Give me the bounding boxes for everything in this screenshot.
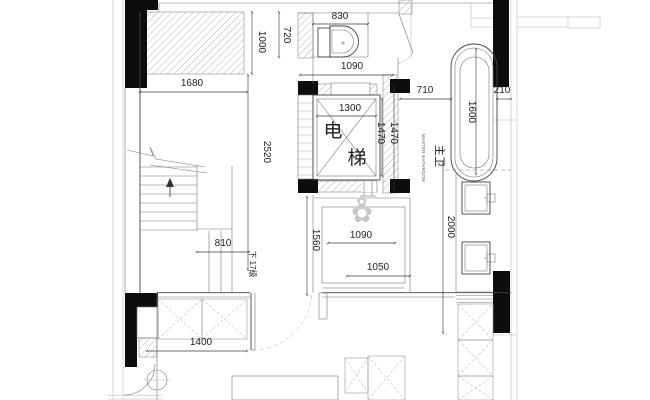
break-line [127, 147, 205, 167]
dim-210: 210 [494, 85, 511, 99]
room-labels: MASTER BATHROOM 主卫 [421, 134, 446, 182]
dim-1050: 1050 [347, 262, 410, 276]
master-bathroom-cn-label: 主卫 [433, 145, 446, 167]
floor-drain [144, 367, 170, 393]
stair-note-label: 下 17级 [248, 250, 258, 277]
dim-text-830: 830 [332, 11, 349, 22]
dim-text-2520: 2520 [261, 141, 272, 164]
dim-text-1680: 1680 [181, 78, 204, 89]
dim-text-810: 810 [215, 238, 232, 249]
dim-text-210: 210 [494, 85, 511, 96]
elevator-door [331, 83, 370, 95]
dim-1000: 1000 [252, 12, 267, 74]
dim-text-1000: 1000 [256, 31, 267, 54]
dim-1560: 1560 [307, 197, 321, 295]
dim-text-1470-outer: 1470 [388, 122, 399, 145]
floor-plan-drawing: 电 梯 下 17级 [0, 0, 650, 400]
door-bottom [251, 293, 312, 350]
dim-2000: 2000 [443, 163, 456, 333]
floor-plan: 电 梯 下 17级 [0, 0, 650, 400]
elevator-label-char1: 电 [323, 120, 342, 142]
dim-text-720: 720 [281, 27, 292, 44]
toilet [318, 26, 358, 57]
stairs: 下 17级 [127, 147, 258, 293]
dim-1680: 1680 [140, 78, 247, 92]
shower-room: ✿ ✿ [313, 194, 410, 319]
dim-810: 810 [197, 238, 249, 252]
door-swing-arc [253, 293, 312, 350]
furniture-rect [232, 376, 338, 400]
dim-text-710: 710 [417, 85, 434, 96]
hatched-closet [140, 12, 244, 74]
dim-text-1090-top: 1090 [341, 61, 364, 72]
elevator-label-char2: 梯 [347, 147, 366, 169]
dim-720: 720 [279, 12, 292, 57]
sink-2 [462, 242, 495, 274]
dim-text-1400: 1400 [190, 337, 213, 348]
dim-text-1300: 1300 [339, 103, 362, 114]
ceiling-flower-decor-small: ✿ [357, 194, 368, 209]
dim-1600: 1600 [466, 49, 477, 174]
dim-text-1560: 1560 [310, 229, 321, 252]
dim-text-1470-inner: 1470 [375, 122, 386, 145]
dim-text-2000: 2000 [445, 216, 456, 239]
sink-1 [462, 182, 495, 214]
dim-text-1050: 1050 [367, 262, 390, 273]
elevator-shaft: 电 梯 [298, 83, 380, 196]
dim-2520: 2520 [248, 75, 272, 270]
dim-1090-top: 1090 [300, 61, 393, 75]
door-swing-arc-left [124, 364, 155, 395]
dim-text-1090-mid: 1090 [350, 230, 373, 241]
master-bathroom-en-label: MASTER BATHROOM [421, 134, 426, 182]
hatched-walls [139, 0, 412, 357]
dim-text-1600: 1600 [466, 101, 477, 124]
dim-1090-mid: 1090 [328, 230, 395, 243]
dim-1300: 1300 [317, 103, 376, 116]
